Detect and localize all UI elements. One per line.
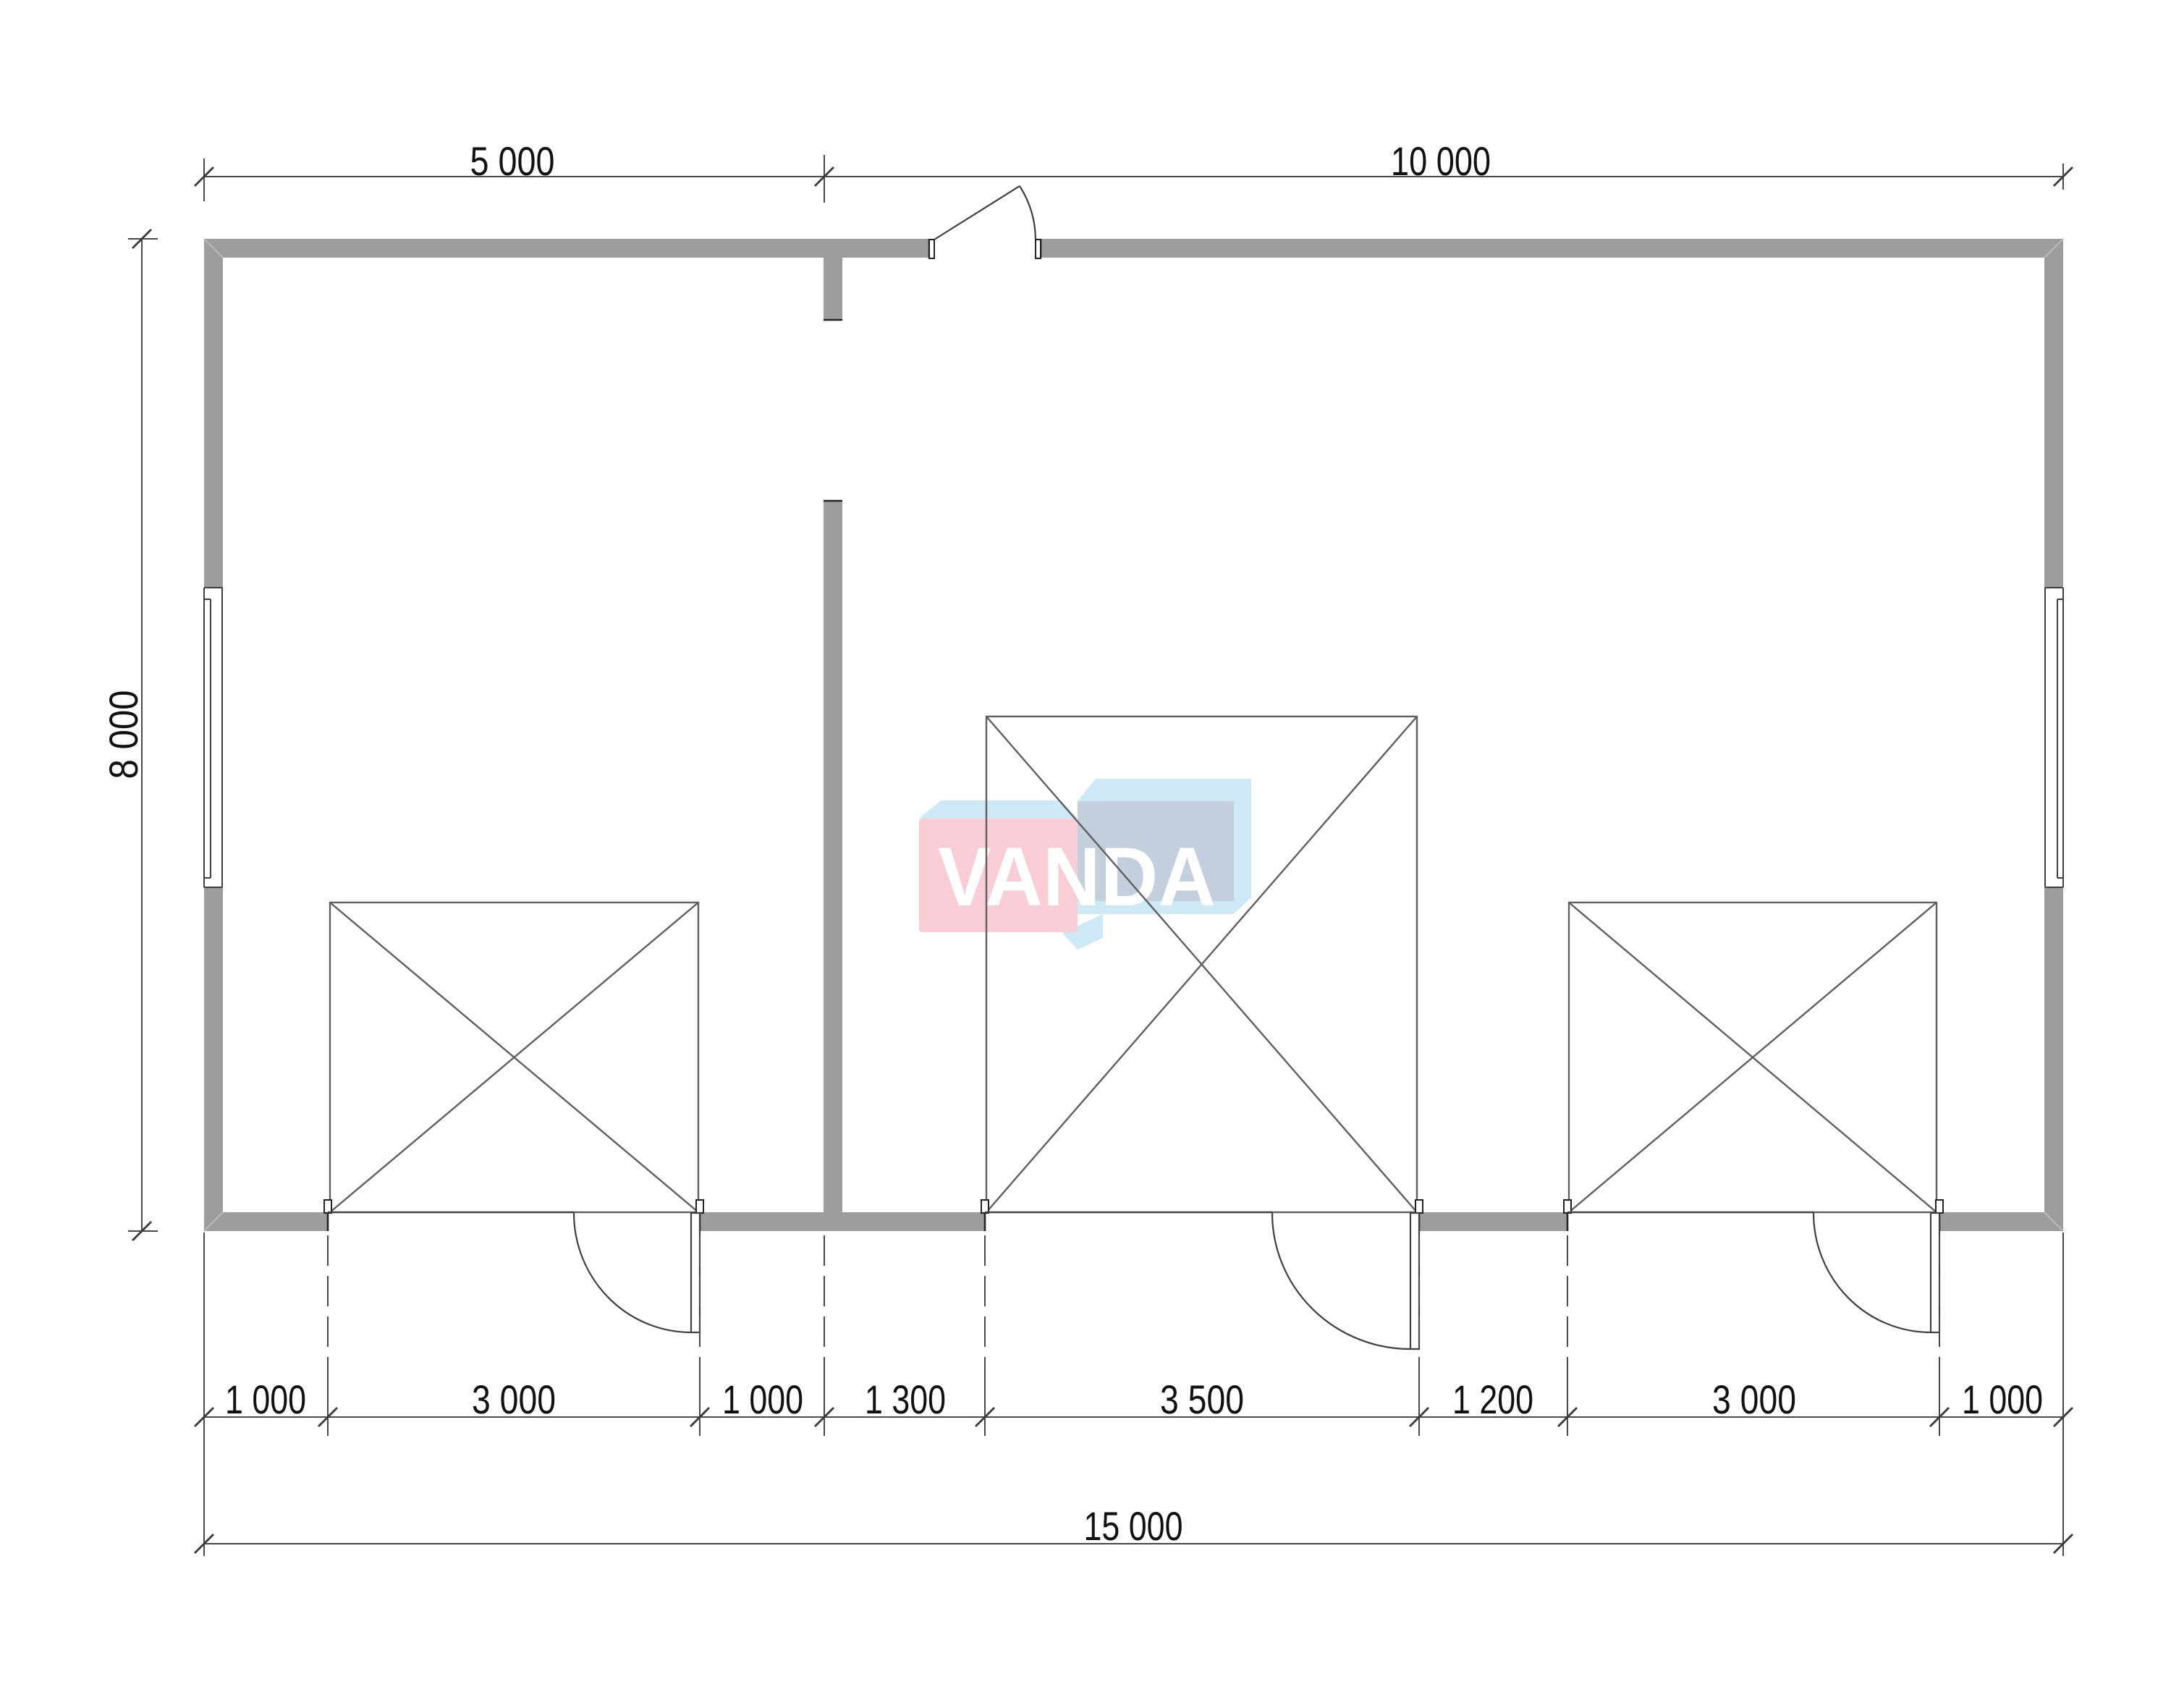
svg-text:1 000: 1 000 [225, 1377, 306, 1422]
svg-text:3 500: 3 500 [1160, 1377, 1244, 1422]
svg-text:8 000: 8 000 [101, 690, 146, 779]
svg-text:VANDA: VANDA [938, 831, 1216, 923]
svg-text:1 300: 1 300 [865, 1377, 946, 1422]
svg-text:1 000: 1 000 [1962, 1377, 2043, 1422]
svg-text:1 000: 1 000 [722, 1377, 803, 1422]
svg-text:3 000: 3 000 [472, 1377, 556, 1422]
svg-text:3 000: 3 000 [1712, 1377, 1796, 1422]
svg-text:5 000: 5 000 [470, 138, 555, 184]
svg-text:1 200: 1 200 [1452, 1377, 1533, 1422]
svg-text:10 000: 10 000 [1391, 138, 1491, 184]
svg-text:15 000: 15 000 [1084, 1503, 1183, 1549]
